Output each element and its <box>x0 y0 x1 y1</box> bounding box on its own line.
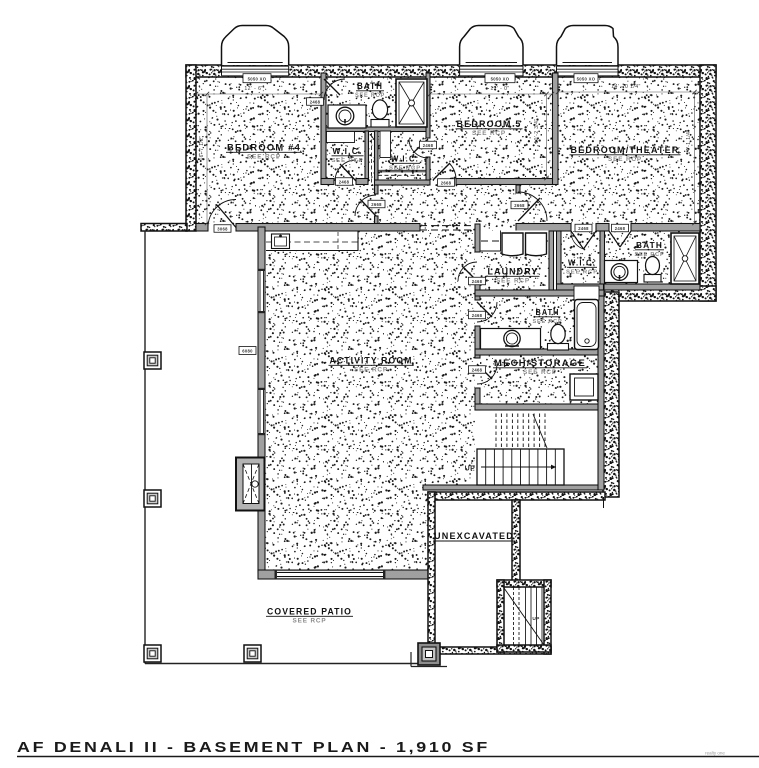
svg-text:COVERED PATIO: COVERED PATIO <box>267 607 352 617</box>
svg-text:SEE RCP: SEE RCP <box>472 131 506 137</box>
svg-text:SEE RCP: SEE RCP <box>293 619 327 625</box>
svg-text:W.I.C.: W.I.C. <box>568 259 596 268</box>
svg-text:SEE RCP: SEE RCP <box>355 93 385 99</box>
svg-text:BATH: BATH <box>536 307 560 317</box>
svg-text:5050 XO: 5050 XO <box>577 76 596 81</box>
svg-text:UNEXCAVATED: UNEXCAVATED <box>434 531 514 541</box>
svg-text:2468: 2468 <box>472 313 483 318</box>
svg-text:SEE RCP: SEE RCP <box>566 270 598 276</box>
svg-text:SEE RCP: SEE RCP <box>332 158 364 164</box>
svg-text:LAUNDRY: LAUNDRY <box>488 267 539 277</box>
svg-text:W.I.C.: W.I.C. <box>333 147 363 156</box>
svg-text:MECH/STORAGE: MECH/STORAGE <box>494 358 586 368</box>
svg-text:SEE RCP: SEE RCP <box>523 370 557 376</box>
svg-text:AF DENALI II - BASEMENT PLAN -: AF DENALI II - BASEMENT PLAN - 1,910 SF <box>17 740 490 756</box>
svg-text:5050 XO: 5050 XO <box>248 76 267 81</box>
svg-text:14'-1 1/4": 14'-1 1/4" <box>686 129 692 154</box>
svg-text:ACTIVITY ROOM: ACTIVITY ROOM <box>330 356 413 366</box>
svg-text:12' - 6": 12' - 6" <box>244 86 263 92</box>
svg-text:10'-2 3/4": 10'-2 3/4" <box>534 118 540 143</box>
svg-text:14' - 0 1/4": 14' - 0 1/4" <box>611 84 641 90</box>
svg-text:W.I.C.: W.I.C. <box>391 155 419 164</box>
svg-text:6080: 6080 <box>242 349 253 354</box>
svg-text:BATH: BATH <box>636 240 663 250</box>
svg-text:SEE RCP: SEE RCP <box>533 319 563 325</box>
svg-text:2468: 2468 <box>339 180 350 185</box>
svg-text:2468: 2468 <box>310 100 321 105</box>
svg-text:2668: 2668 <box>371 202 382 207</box>
svg-text:SEE RCP: SEE RCP <box>496 279 530 285</box>
svg-text:2468: 2468 <box>423 143 434 148</box>
svg-text:2668: 2668 <box>514 203 525 208</box>
svg-text:BEDROOM #4: BEDROOM #4 <box>227 143 301 153</box>
svg-text:BEDROOM/THEATER: BEDROOM/THEATER <box>571 145 680 155</box>
svg-text:UP: UP <box>532 616 540 622</box>
svg-text:16'-7 1/2": 16'-7 1/2" <box>199 135 205 160</box>
svg-text:12' - 0": 12' - 0" <box>490 86 509 92</box>
svg-text:BEDROOM 5: BEDROOM 5 <box>457 119 522 129</box>
svg-text:3068: 3068 <box>217 227 228 232</box>
svg-text:UP: UP <box>465 466 476 473</box>
svg-text:2468: 2468 <box>472 368 483 373</box>
svg-text:2468: 2468 <box>472 279 483 284</box>
svg-text:SEE RCP: SEE RCP <box>635 252 665 258</box>
svg-text:SEE RCP: SEE RCP <box>354 368 388 374</box>
svg-text:SEE RCP: SEE RCP <box>389 166 421 172</box>
svg-text:realty one: realty one <box>705 751 725 756</box>
svg-text:SEE RCP: SEE RCP <box>608 157 642 163</box>
svg-text:5050 XO: 5050 XO <box>491 76 510 81</box>
svg-text:SEE RCP: SEE RCP <box>247 155 281 161</box>
svg-text:BATH: BATH <box>357 81 383 91</box>
svg-text:2468: 2468 <box>578 226 589 231</box>
svg-text:2668: 2668 <box>441 181 452 186</box>
svg-text:2468: 2468 <box>615 226 626 231</box>
